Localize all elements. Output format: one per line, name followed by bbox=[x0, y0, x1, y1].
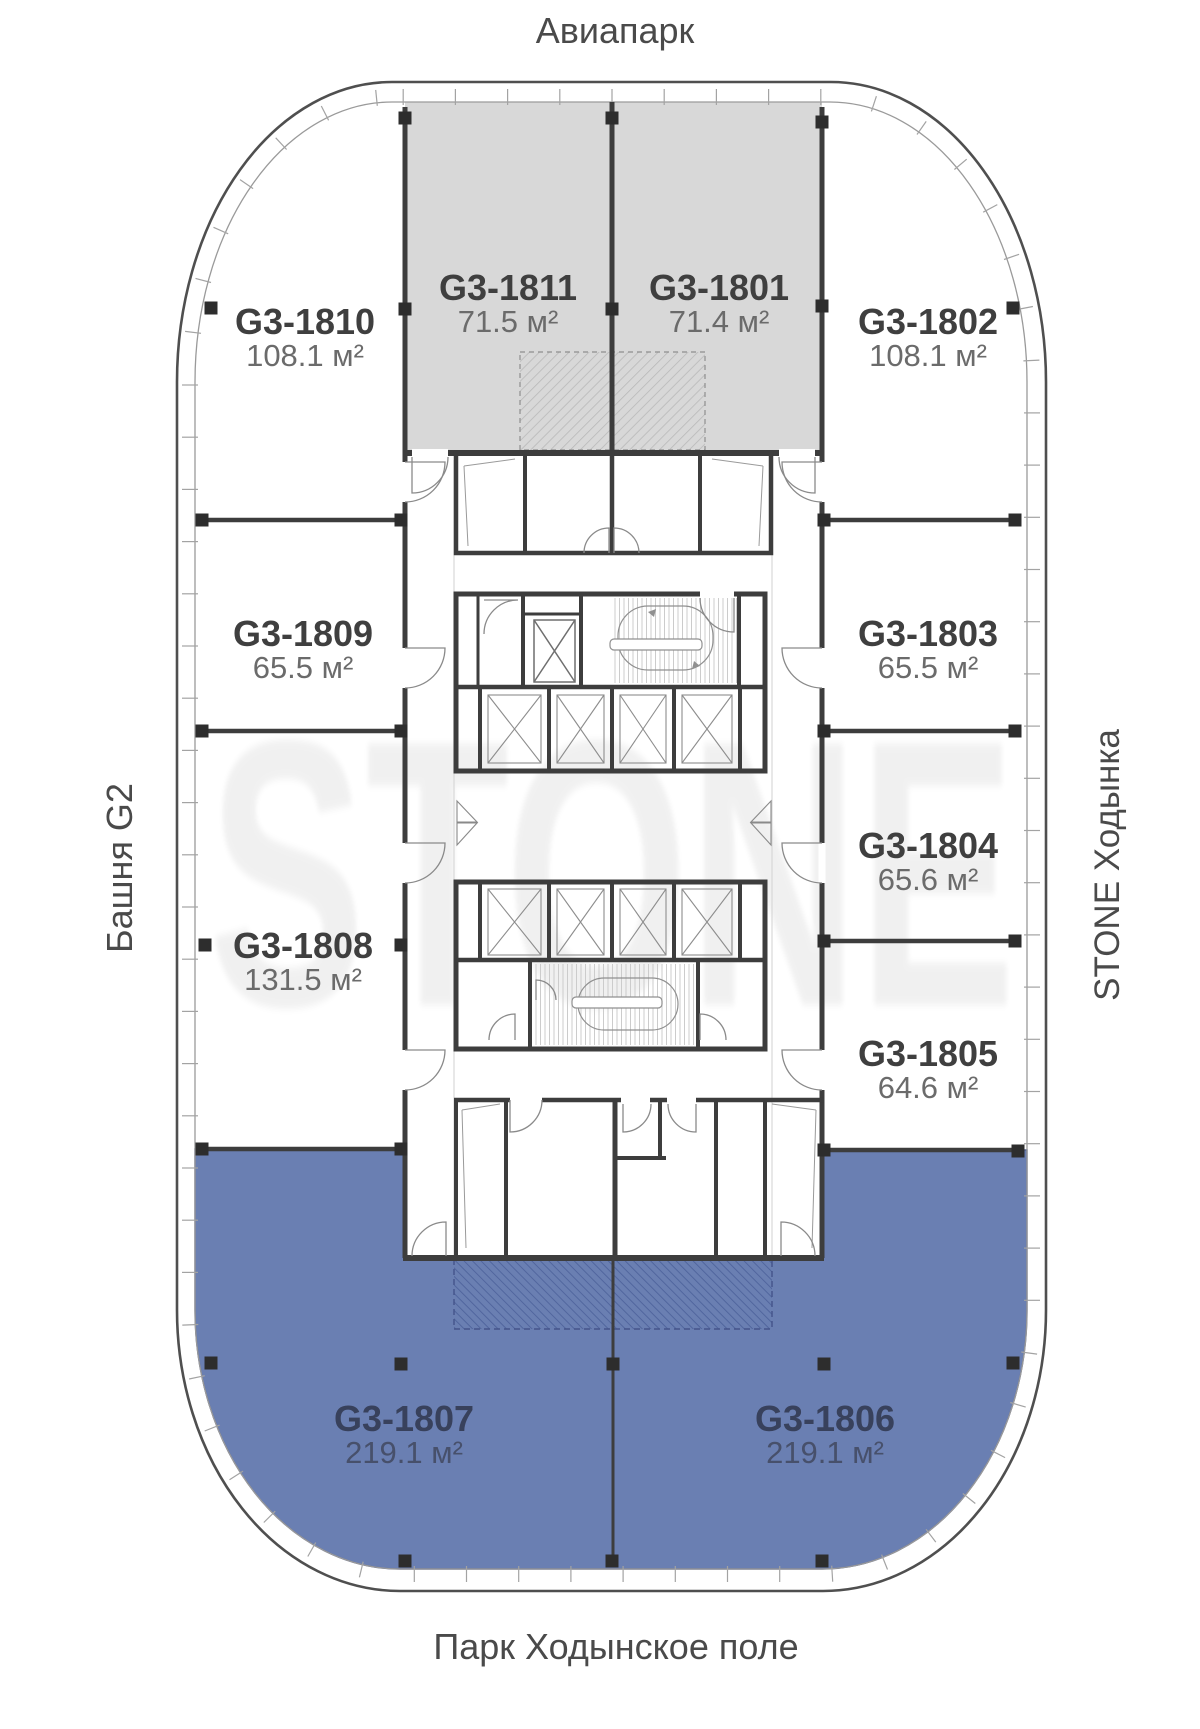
svg-text:Парк Ходынское поле: Парк Ходынское поле bbox=[433, 1626, 798, 1667]
svg-text:G3-1805: G3-1805 bbox=[858, 1033, 998, 1074]
svg-text:G3-1806: G3-1806 bbox=[755, 1398, 895, 1439]
svg-text:108.1 м²: 108.1 м² bbox=[246, 338, 364, 373]
svg-text:G3-1804: G3-1804 bbox=[858, 825, 998, 866]
svg-text:65.5 м²: 65.5 м² bbox=[878, 650, 979, 685]
svg-text:71.4 м²: 71.4 м² bbox=[669, 304, 770, 339]
svg-text:G3-1808: G3-1808 bbox=[233, 925, 373, 966]
svg-text:G3-1802: G3-1802 bbox=[858, 301, 998, 342]
svg-text:219.1 м²: 219.1 м² bbox=[766, 1435, 884, 1470]
svg-text:71.5 м²: 71.5 м² bbox=[458, 304, 559, 339]
svg-text:65.6 м²: 65.6 м² bbox=[878, 862, 979, 897]
svg-text:G3-1810: G3-1810 bbox=[235, 301, 375, 342]
svg-text:G3-1807: G3-1807 bbox=[334, 1398, 474, 1439]
svg-text:STONE Ходынка: STONE Ходынка bbox=[1088, 729, 1127, 1001]
svg-text:G3-1809: G3-1809 bbox=[233, 613, 373, 654]
svg-text:G3-1803: G3-1803 bbox=[858, 613, 998, 654]
svg-text:G3-1811: G3-1811 bbox=[439, 267, 577, 308]
svg-text:64.6 м²: 64.6 м² bbox=[878, 1070, 979, 1105]
svg-text:131.5 м²: 131.5 м² bbox=[244, 962, 362, 997]
svg-text:108.1 м²: 108.1 м² bbox=[869, 338, 987, 373]
svg-text:Башня G2: Башня G2 bbox=[99, 783, 140, 953]
svg-text:G3-1801: G3-1801 bbox=[649, 267, 789, 308]
svg-text:65.5 м²: 65.5 м² bbox=[253, 650, 354, 685]
svg-text:219.1 м²: 219.1 м² bbox=[345, 1435, 463, 1470]
svg-text:Авиапарк: Авиапарк bbox=[536, 10, 695, 51]
